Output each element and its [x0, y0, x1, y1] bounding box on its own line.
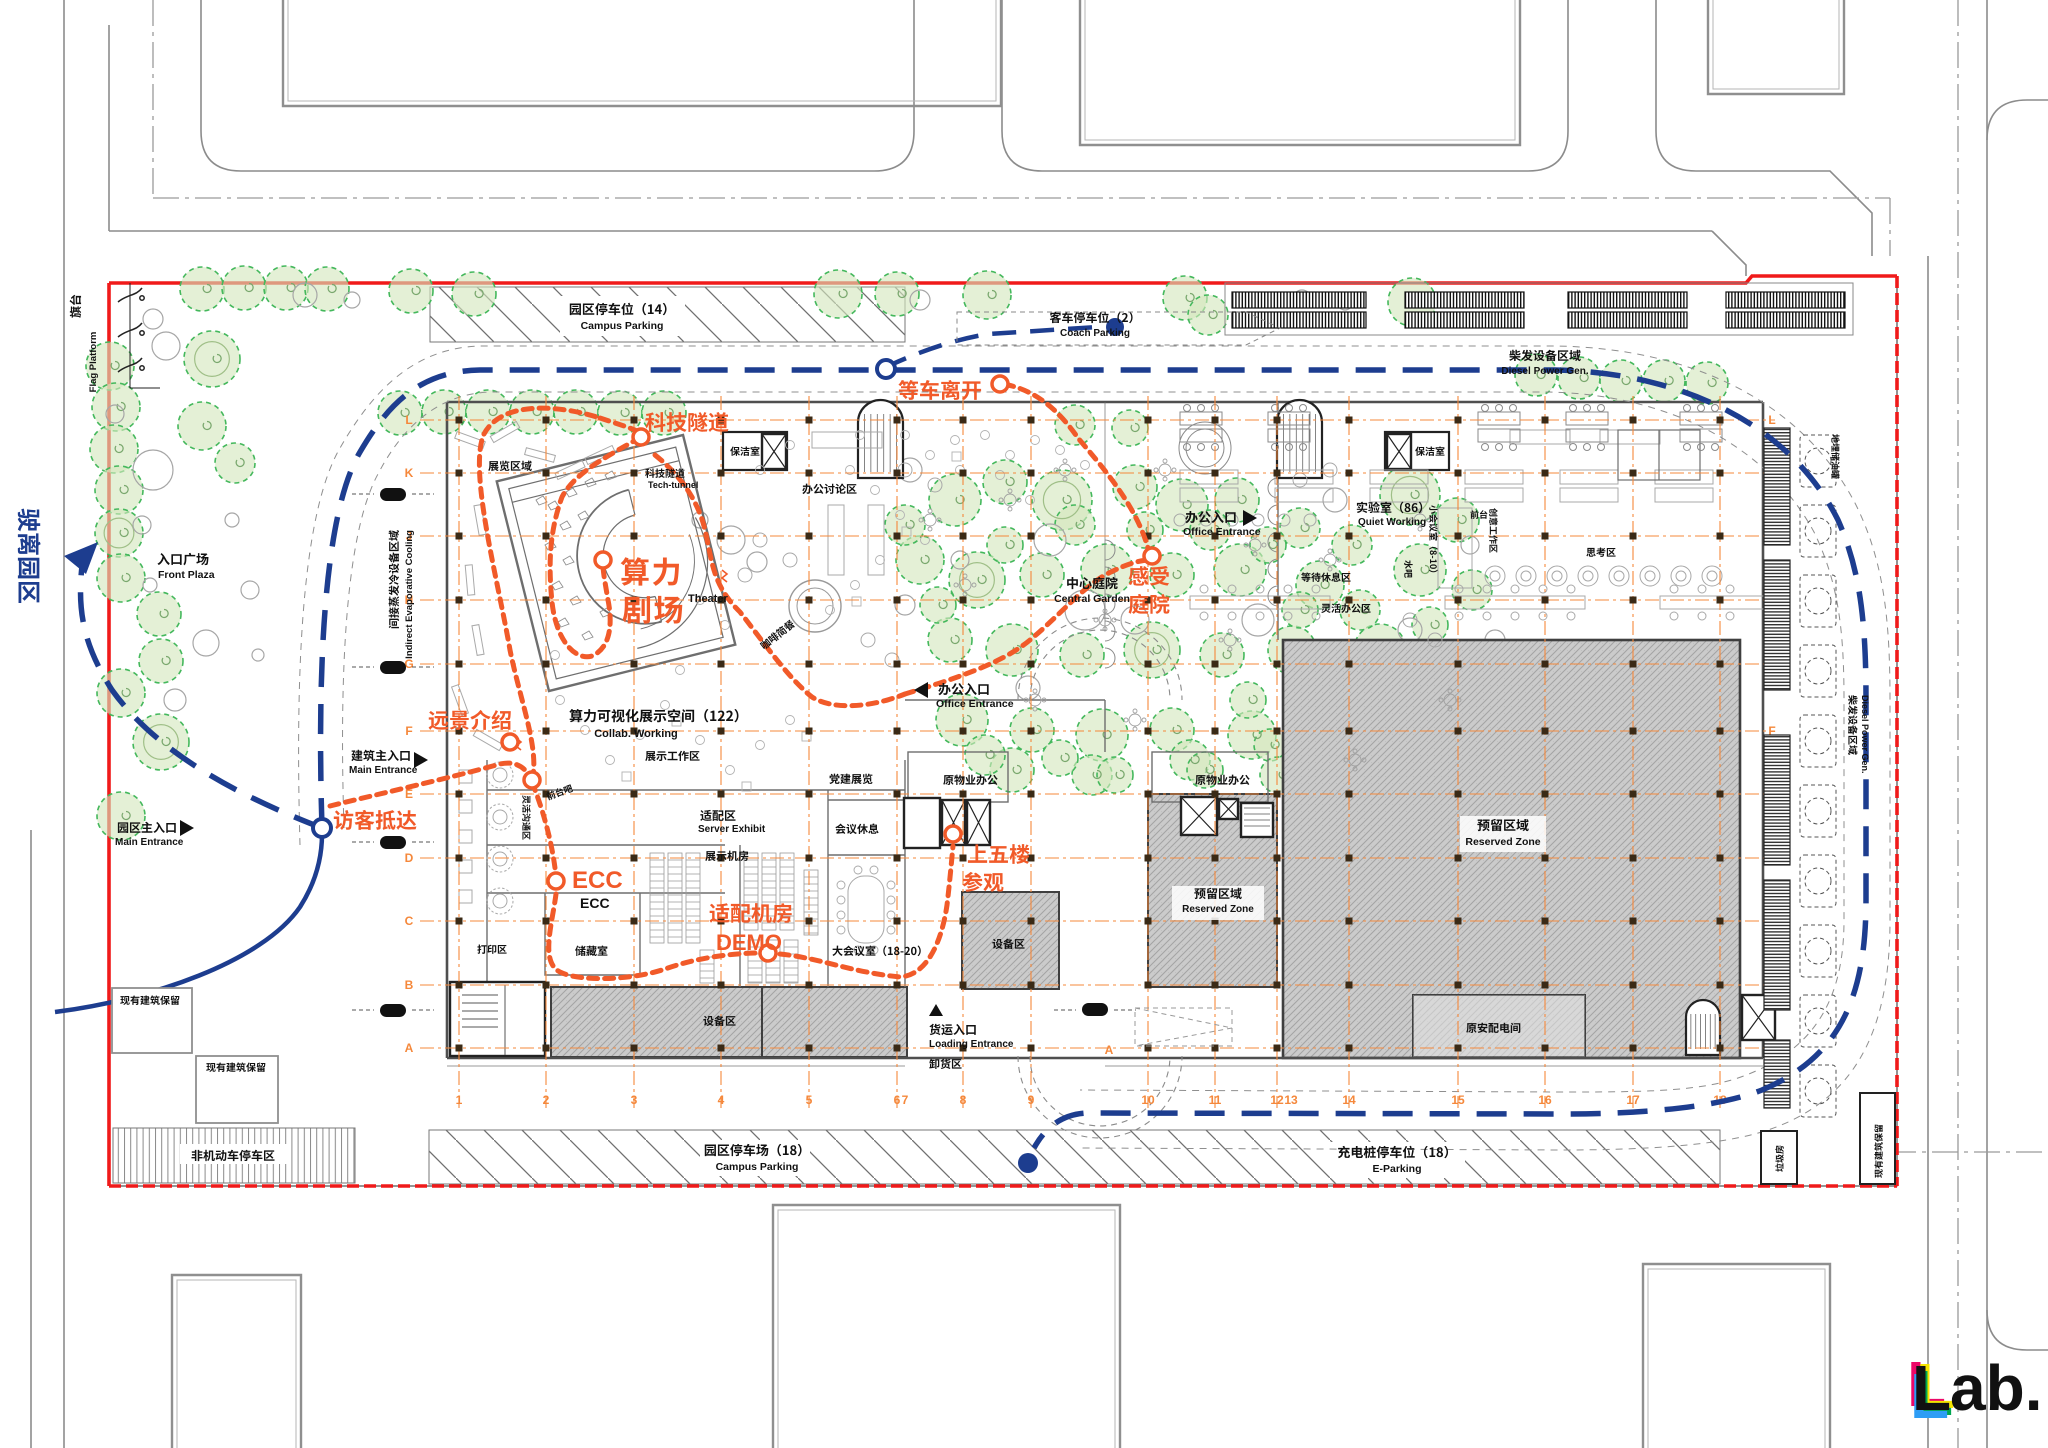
svg-text:C: C [405, 914, 414, 928]
svg-text:Collab. Working: Collab. Working [594, 728, 678, 740]
svg-text:3: 3 [631, 1093, 638, 1107]
svg-text:ECC: ECC [572, 867, 623, 894]
svg-text:Central Garden: Central Garden [1054, 593, 1130, 605]
svg-text:Quiet Working: Quiet Working [1358, 517, 1426, 528]
svg-text:Indirect Evaporative Cooling: Indirect Evaporative Cooling [404, 530, 415, 659]
svg-text:2: 2 [543, 1093, 550, 1107]
svg-text:DEMO: DEMO [716, 930, 782, 955]
svg-text:Office Entrance: Office Entrance [1183, 526, 1261, 538]
svg-text:12: 12 [1270, 1093, 1284, 1107]
svg-text:Tech-tunnel: Tech-tunnel [648, 480, 698, 490]
svg-text:11: 11 [1209, 1093, 1222, 1107]
svg-text:K: K [405, 466, 414, 480]
svg-text:14: 14 [1342, 1093, 1356, 1107]
svg-text:1: 1 [456, 1093, 463, 1107]
svg-text:A: A [1105, 1043, 1114, 1057]
svg-text:7: 7 [902, 1093, 909, 1107]
svg-text:Diesel Power Gen.: Diesel Power Gen. [1860, 695, 1870, 774]
svg-text:Server Exhibit: Server Exhibit [698, 824, 766, 835]
svg-text:4: 4 [718, 1093, 725, 1107]
svg-text:17: 17 [1626, 1093, 1640, 1107]
svg-text:Theater: Theater [688, 593, 728, 605]
svg-text:Reserved Zone: Reserved Zone [1182, 904, 1254, 915]
svg-text:Flag Platform: Flag Platform [88, 332, 99, 393]
svg-text:Office Entrance: Office Entrance [936, 698, 1014, 710]
svg-text:Main Entrance: Main Entrance [115, 837, 184, 848]
svg-text:8: 8 [960, 1093, 967, 1107]
svg-text:B: B [405, 978, 414, 992]
svg-text:Campus Parking: Campus Parking [581, 320, 664, 332]
svg-text:L: L [1768, 413, 1775, 427]
svg-text:Loading Entrance: Loading Entrance [929, 1039, 1014, 1050]
svg-text:9: 9 [1028, 1093, 1035, 1107]
svg-text:L: L [405, 413, 412, 427]
svg-text:F: F [405, 724, 412, 738]
svg-text:15: 15 [1451, 1093, 1465, 1107]
svg-text:ab.: ab. [1950, 1352, 2042, 1424]
svg-text:13: 13 [1284, 1093, 1298, 1107]
svg-text:D: D [405, 851, 414, 865]
svg-text:Reserved Zone: Reserved Zone [1465, 836, 1540, 848]
svg-text:ECC: ECC [580, 895, 610, 911]
svg-text:A: A [405, 1041, 414, 1055]
svg-text:Main Entrance: Main Entrance [349, 765, 418, 776]
svg-text:Front Plaza: Front Plaza [158, 569, 215, 581]
svg-text:5: 5 [806, 1093, 813, 1107]
svg-text:E-Parking: E-Parking [1372, 1163, 1421, 1175]
svg-text:Diesel Power Gen.: Diesel Power Gen. [1501, 366, 1588, 377]
svg-text:L: L [1912, 1352, 1951, 1424]
svg-text:10: 10 [1141, 1093, 1155, 1107]
svg-text:6: 6 [894, 1093, 901, 1107]
svg-text:Campus Parking: Campus Parking [716, 1161, 799, 1173]
svg-text:Coach Parking: Coach Parking [1060, 328, 1130, 339]
svg-text:16: 16 [1538, 1093, 1552, 1107]
